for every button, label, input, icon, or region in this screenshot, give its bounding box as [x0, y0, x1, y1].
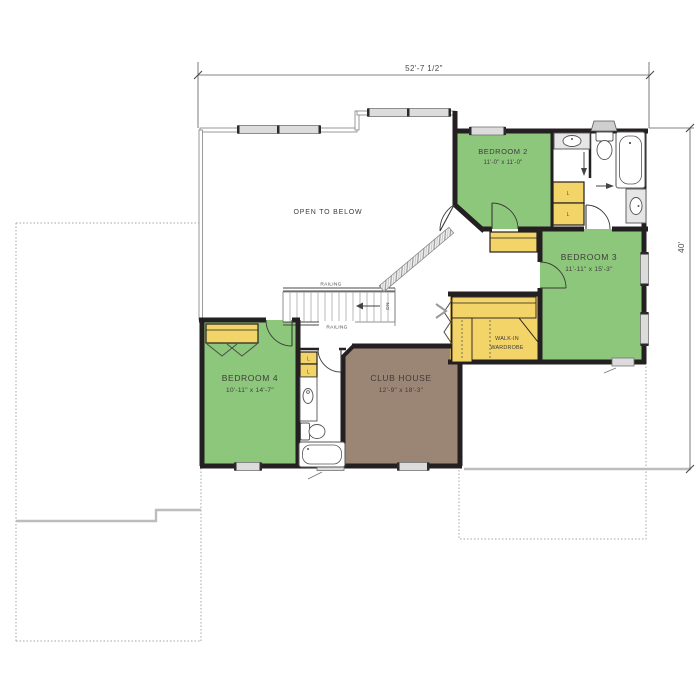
swing-arrow-right: [596, 183, 614, 189]
drain-dot: [307, 448, 309, 450]
open-to-below-area: OPEN TO BELOW: [199, 111, 455, 320]
bedroom2-size: 11'-0" x 11'-0": [483, 160, 522, 166]
lower-roof-step-line: [16, 510, 201, 521]
sink-icon: [630, 198, 642, 215]
bedroom-3-room: [540, 229, 644, 362]
toilet-tank: [596, 132, 613, 141]
bathtub-inner-2: [303, 445, 342, 464]
toilet-tank: [301, 423, 310, 440]
club-house-size: 12'-9" x 18'-3": [379, 387, 424, 394]
lower-floor-outline-left-rect: [16, 223, 201, 641]
bedroom2-name: BEDROOM 2: [478, 147, 528, 156]
open-railing-hatched: [379, 227, 454, 291]
bedroom3-size: 11'-11" x 15'-3": [565, 266, 613, 273]
window-bedroom3-right-2: [641, 312, 649, 346]
toilet-shelf: [591, 121, 617, 131]
faucet-dot: [571, 138, 573, 140]
swing-arrow-down: [581, 152, 587, 176]
window-bedroom4-bottom: [234, 463, 262, 471]
floor-plan-drawing: 52'-7 1/2" 40' OPEN TO BELOW: [0, 0, 700, 700]
club-house-room: [343, 346, 460, 466]
dimension-width-label: 52'-7 1/2": [405, 64, 443, 73]
walkin-entry-arrow: [436, 304, 446, 318]
door-hall-diagonal: [440, 205, 454, 231]
thin-wall-left: [199, 130, 203, 320]
lower-floor-outline-left: [16, 223, 201, 641]
linen-label: L: [567, 212, 570, 218]
toilet-icon: [309, 425, 325, 439]
down-label: DN: [385, 302, 391, 310]
faucet-dot: [638, 205, 640, 207]
window-bedroom2-top: [469, 127, 506, 135]
bedroom3-name: BEDROOM 3: [561, 252, 617, 262]
linen-closet-bath1: L L: [553, 182, 584, 225]
bedroom-2-room: [455, 131, 552, 229]
bedroom4-size: 10'-11" x 14'-7": [226, 387, 274, 394]
window-top-upper: [367, 109, 451, 117]
railing-bottom-label: RAILING: [326, 325, 347, 331]
lower-floor-outline-right-rect: [459, 364, 646, 539]
walkin-label-1: WALK-IN: [495, 336, 519, 342]
floor-plan-page: 52'-7 1/2" 40' OPEN TO BELOW: [0, 0, 700, 700]
linen-label: L: [307, 357, 310, 363]
window-top-left: [237, 126, 321, 134]
club-house-name: CLUB HOUSE: [370, 373, 431, 383]
dimension-height-label: 40': [677, 241, 686, 253]
linen-closet-bath2: L L: [300, 352, 317, 377]
toilet-icon: [597, 141, 612, 160]
linen-label: L: [307, 370, 310, 376]
sink-icon: [563, 136, 581, 147]
window-bedroom3-right-1: [641, 252, 649, 286]
railing-top-label: RAILING: [320, 282, 341, 288]
bedroom4-name: BEDROOM 4: [222, 373, 278, 383]
door-bath-middle: [318, 349, 341, 372]
door-bath-top: [586, 205, 610, 229]
drain-dot: [629, 142, 631, 144]
walkin-label-2: WARDROBE: [490, 345, 523, 351]
hall-dresser: [490, 232, 537, 252]
dimension-right: 40': [649, 124, 694, 473]
window-club-bottom: [397, 463, 430, 471]
dimension-top: 52'-7 1/2": [194, 62, 654, 128]
open-to-below-label: OPEN TO BELOW: [294, 209, 363, 216]
lower-floor-outline-right: [459, 364, 691, 539]
linen-label: L: [567, 191, 570, 197]
